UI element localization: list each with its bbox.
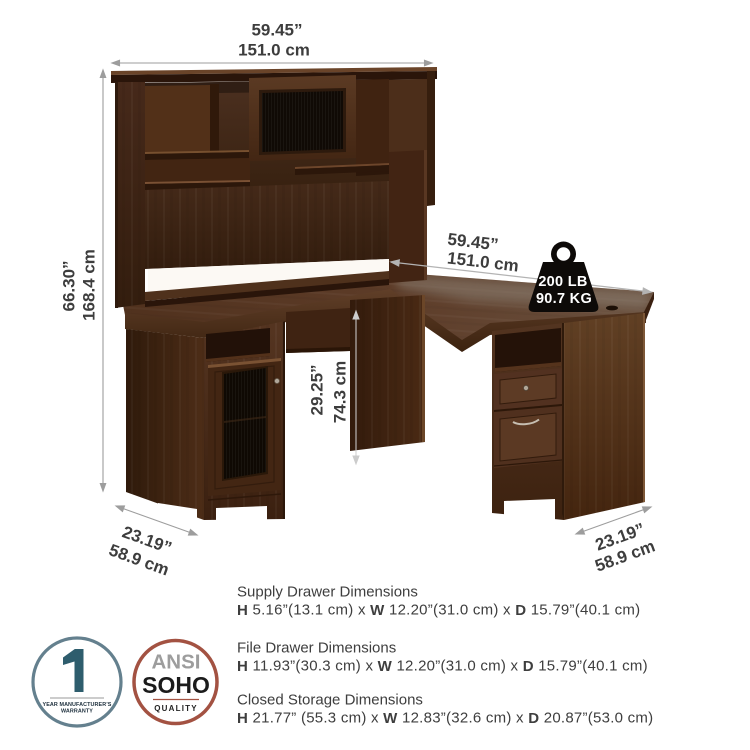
svg-text:SOHO: SOHO (142, 672, 210, 698)
svg-text:H 11.93”(30.3 cm) x W 12.20”(3: H 11.93”(30.3 cm) x W 12.20”(31.0 cm) x … (237, 658, 648, 675)
svg-text:200 LB: 200 LB (538, 274, 587, 290)
svg-text:168.4 cm: 168.4 cm (80, 249, 99, 321)
svg-text:WARRANTY: WARRANTY (61, 709, 93, 715)
svg-text:QUALITY: QUALITY (154, 704, 198, 713)
svg-text:151.0 cm: 151.0 cm (446, 248, 520, 275)
svg-text:YEAR MANUFACTURER’S: YEAR MANUFACTURER’S (43, 702, 112, 708)
svg-text:29.25”: 29.25” (308, 364, 327, 415)
svg-text:66.30”: 66.30” (60, 260, 79, 311)
svg-text:H 21.77” (55.3 cm) x W 12.83”: H 21.77” (55.3 cm) x W 12.83”(32.6 cm) x… (237, 710, 653, 727)
svg-text:90.7 KG: 90.7 KG (536, 291, 592, 307)
svg-text:Supply Drawer Dimensions: Supply Drawer Dimensions (237, 584, 418, 601)
svg-text:H 5.16”(13.1 cm) x W 12.20”(31: H 5.16”(13.1 cm) x W 12.20”(31.0 cm) x D… (237, 602, 640, 619)
svg-text:ANSI: ANSI (152, 651, 201, 674)
svg-text:59.45”: 59.45” (251, 21, 302, 40)
svg-text:File Drawer Dimensions: File Drawer Dimensions (237, 640, 396, 657)
svg-text:74.3 cm: 74.3 cm (331, 361, 350, 423)
svg-text:151.0 cm: 151.0 cm (238, 41, 310, 60)
svg-text:Closed Storage Dimensions: Closed Storage Dimensions (237, 692, 423, 709)
